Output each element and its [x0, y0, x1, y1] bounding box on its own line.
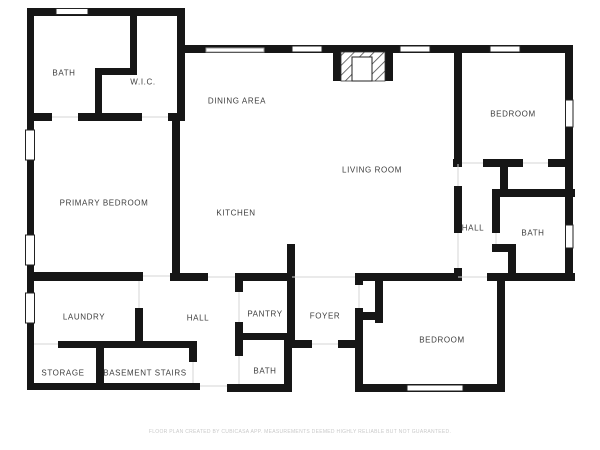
room-label-walk-in-closet: W.I.C.: [130, 78, 155, 87]
window-icon: [400, 46, 430, 52]
room-label-primary-bedroom: PRIMARY BEDROOM: [60, 199, 149, 208]
room-label-basement-stairs: BASEMENT STAIRS: [103, 369, 186, 378]
window-icon: [56, 9, 88, 15]
window-icon: [566, 100, 574, 127]
room-label-bath-right: BATH: [521, 229, 544, 238]
room-label-bedroom-lower-right: BEDROOM: [419, 336, 465, 345]
fireplace-icon: [333, 52, 393, 81]
room-label-pantry: PANTRY: [247, 310, 282, 319]
window-icon: [407, 385, 463, 391]
window-icon: [26, 235, 35, 265]
room-label-storage: STORAGE: [41, 369, 84, 378]
floor-plan: BATH W.I.C. DINING AREA PRIMARY BEDROOM …: [0, 0, 600, 450]
room-label-bath-upper-left: BATH: [52, 69, 75, 78]
room-label-living-room: LIVING ROOM: [342, 166, 402, 175]
window-icon: [292, 46, 322, 52]
window-icon: [566, 225, 574, 248]
footer-disclaimer: FLOOR PLAN CREATED BY CUBICASA APP. MEAS…: [149, 429, 451, 435]
room-label-kitchen: KITCHEN: [216, 209, 255, 218]
window-icon: [26, 293, 35, 323]
room-label-hall-right: HALL: [462, 224, 484, 233]
room-label-foyer: FOYER: [310, 312, 341, 321]
floor-plan-drawing: [0, 0, 600, 450]
wall-opening: [206, 48, 264, 52]
window-icon: [490, 46, 520, 52]
window-icon: [26, 130, 35, 160]
room-label-hall-lower: HALL: [187, 314, 209, 323]
room-label-dining-area: DINING AREA: [208, 97, 266, 106]
room-label-bath-lower: BATH: [253, 367, 276, 376]
room-label-bedroom-upper-right: BEDROOM: [490, 110, 536, 119]
room-label-laundry: LAUNDRY: [63, 313, 105, 322]
